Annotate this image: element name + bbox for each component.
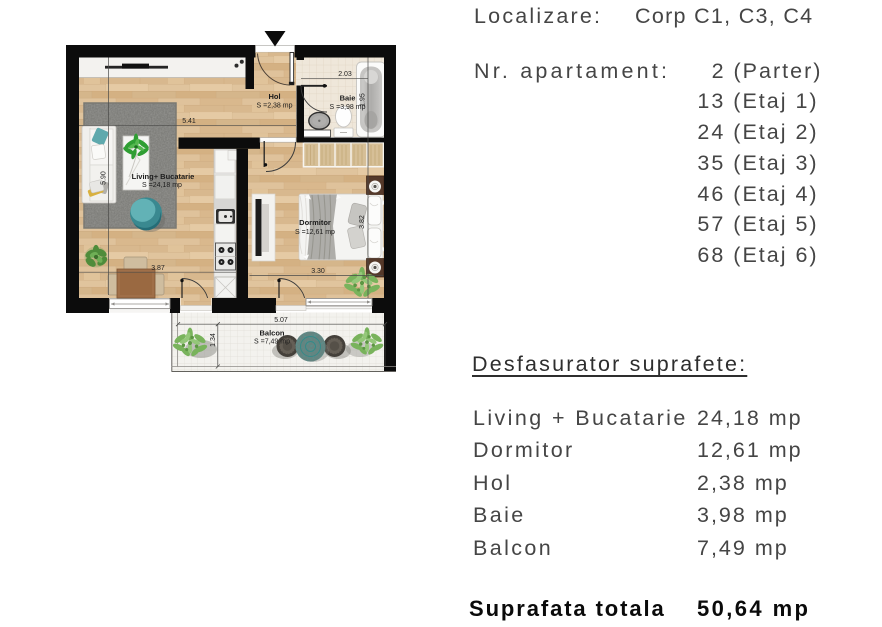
- svg-text:3.82: 3.82: [359, 215, 366, 229]
- svg-text:S =7,49 mp: S =7,49 mp: [254, 339, 290, 346]
- svg-text:5.90: 5.90: [101, 171, 108, 185]
- svg-text:Living+ Bucatarie: Living+ Bucatarie: [132, 172, 195, 181]
- svg-text:S =3,98 mp: S =3,98 mp: [330, 104, 366, 111]
- svg-text:S =12,61 mp: S =12,61 mp: [295, 229, 335, 236]
- svg-text:5.41: 5.41: [182, 118, 196, 125]
- svg-text:Dormitor: Dormitor: [299, 218, 331, 227]
- svg-text:3.30: 3.30: [311, 268, 325, 275]
- svg-text:S =2,38 mp: S =2,38 mp: [257, 103, 293, 110]
- svg-text:1.34: 1.34: [210, 333, 217, 347]
- svg-text:S =24,18 mp: S =24,18 mp: [142, 182, 182, 189]
- svg-text:Balcon: Balcon: [259, 329, 284, 338]
- svg-text:5.07: 5.07: [274, 317, 288, 324]
- svg-text:2.03: 2.03: [338, 71, 352, 78]
- svg-text:3.87: 3.87: [151, 265, 165, 272]
- svg-text:Hol: Hol: [268, 92, 280, 101]
- svg-text:Baie: Baie: [340, 94, 356, 103]
